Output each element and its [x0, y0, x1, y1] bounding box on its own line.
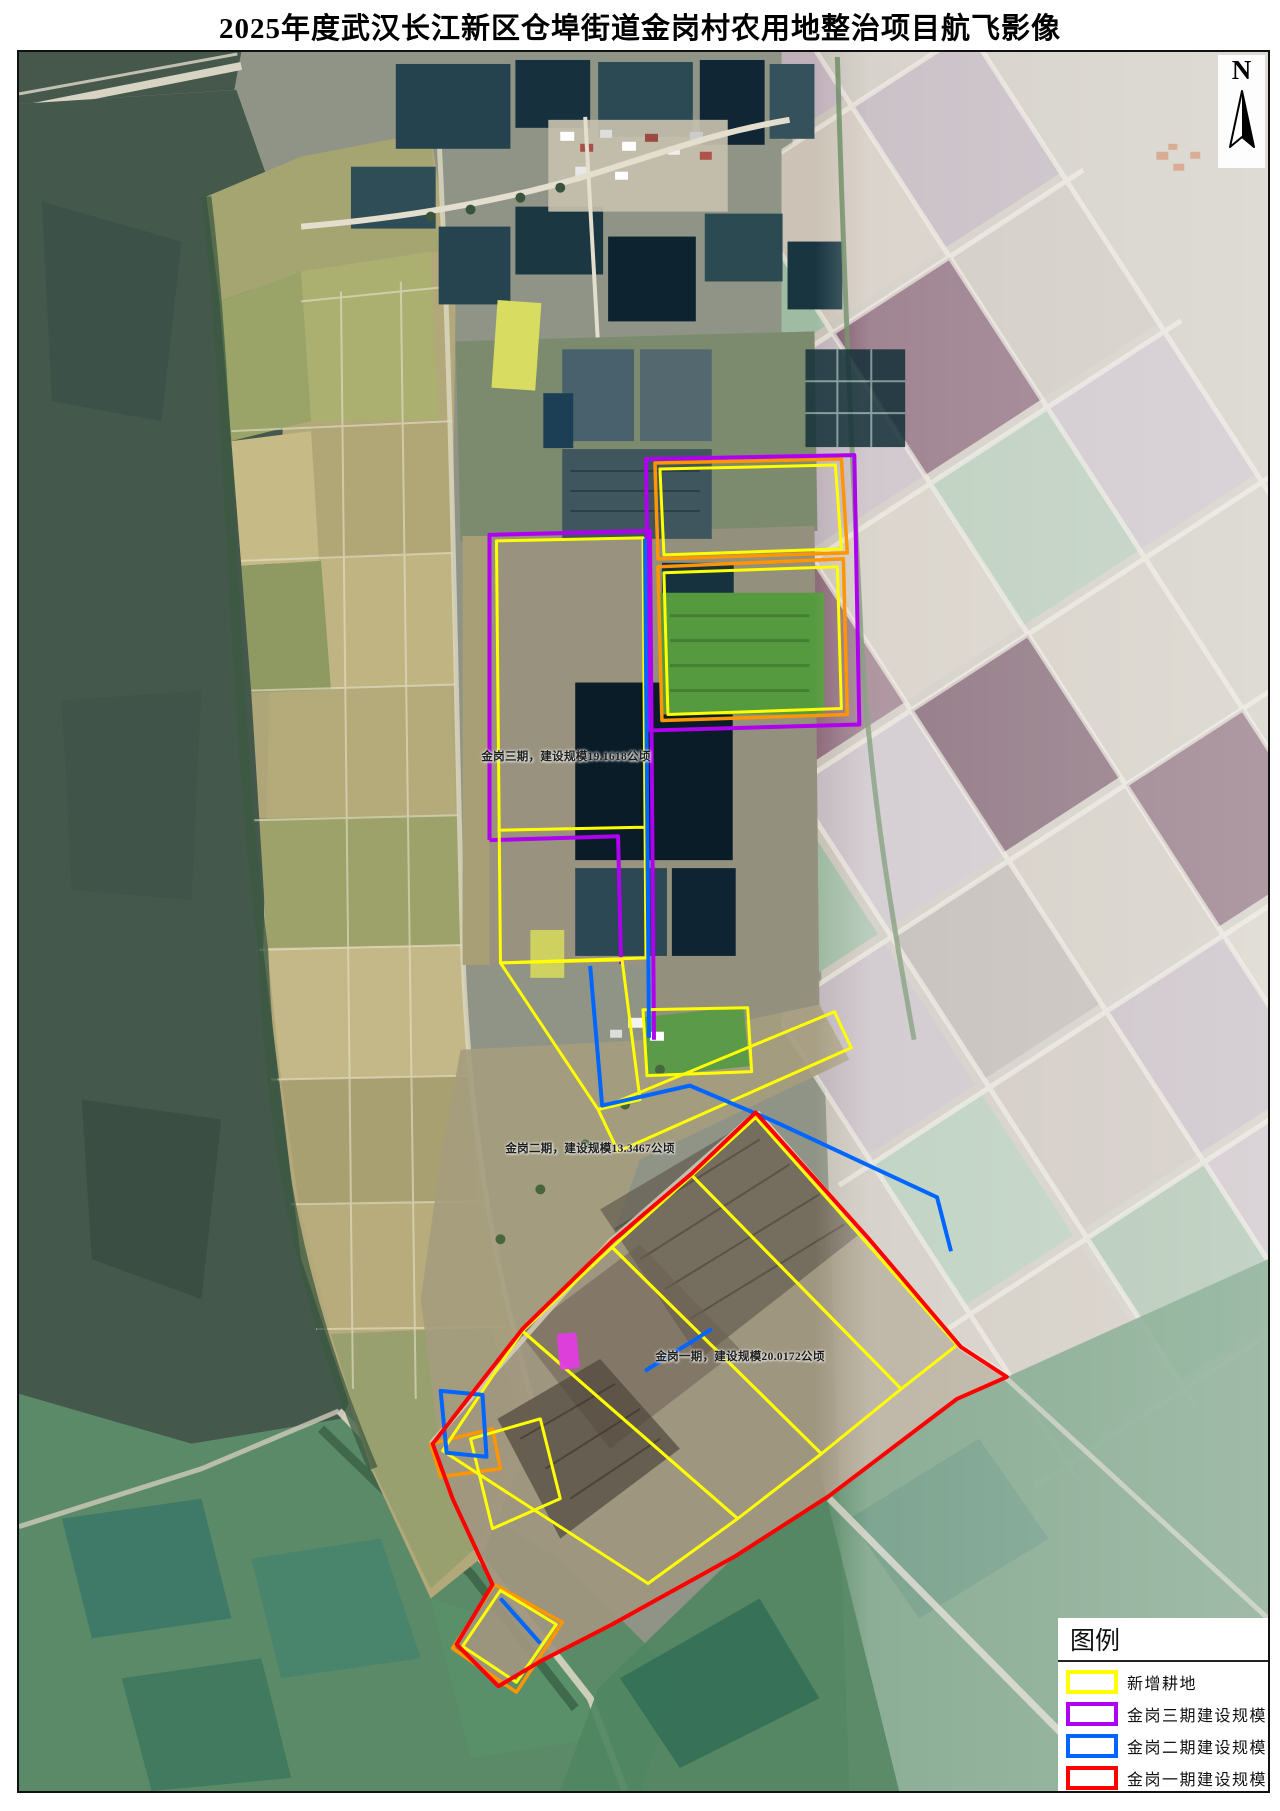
map-title: 2025年度武汉长江新区仓埠街道金岗村农用地整治项目航飞影像	[0, 5, 1280, 47]
phase3-area-label: 金岗三期，建设规模19.1618公顷	[481, 748, 650, 764]
phase2-area-label: 金岗二期，建设规模13.3467公顷	[505, 1140, 674, 1156]
legend-swatch-new-farmland	[1066, 1670, 1118, 1694]
legend-title: 图例	[1058, 1620, 1268, 1662]
legend-swatch-phase2	[1066, 1734, 1118, 1758]
magenta-marker	[556, 1332, 580, 1370]
north-arrow-icon	[1225, 86, 1259, 158]
page: { "title": "2025年度武汉长江新区仓埠街道金岗村农用地整治项目航飞…	[0, 0, 1280, 1811]
map-frame: 金岗三期，建设规模19.1618公顷 金岗二期，建设规模13.3467公顷 金岗…	[17, 50, 1270, 1793]
checkered-ponds	[805, 349, 905, 447]
legend-swatch-phase1	[1066, 1766, 1118, 1790]
legend-swatch-phase3	[1066, 1702, 1118, 1726]
legend-item: 金岗三期建设规模	[1066, 1702, 1260, 1726]
north-label: N	[1218, 55, 1265, 86]
legend-item: 金岗一期建设规模	[1066, 1766, 1260, 1790]
aerial-imagery	[19, 52, 1268, 1791]
legend: 图例 新增耕地 金岗三期建设规模 金岗二期建设规模 金岗一期建设规模	[1058, 1618, 1268, 1791]
legend-item: 新增耕地	[1066, 1670, 1260, 1694]
legend-item: 金岗二期建设规模	[1066, 1734, 1260, 1758]
phase1-area-label: 金岗一期，建设规模20.0172公顷	[655, 1348, 824, 1364]
north-arrow: N	[1218, 55, 1265, 168]
